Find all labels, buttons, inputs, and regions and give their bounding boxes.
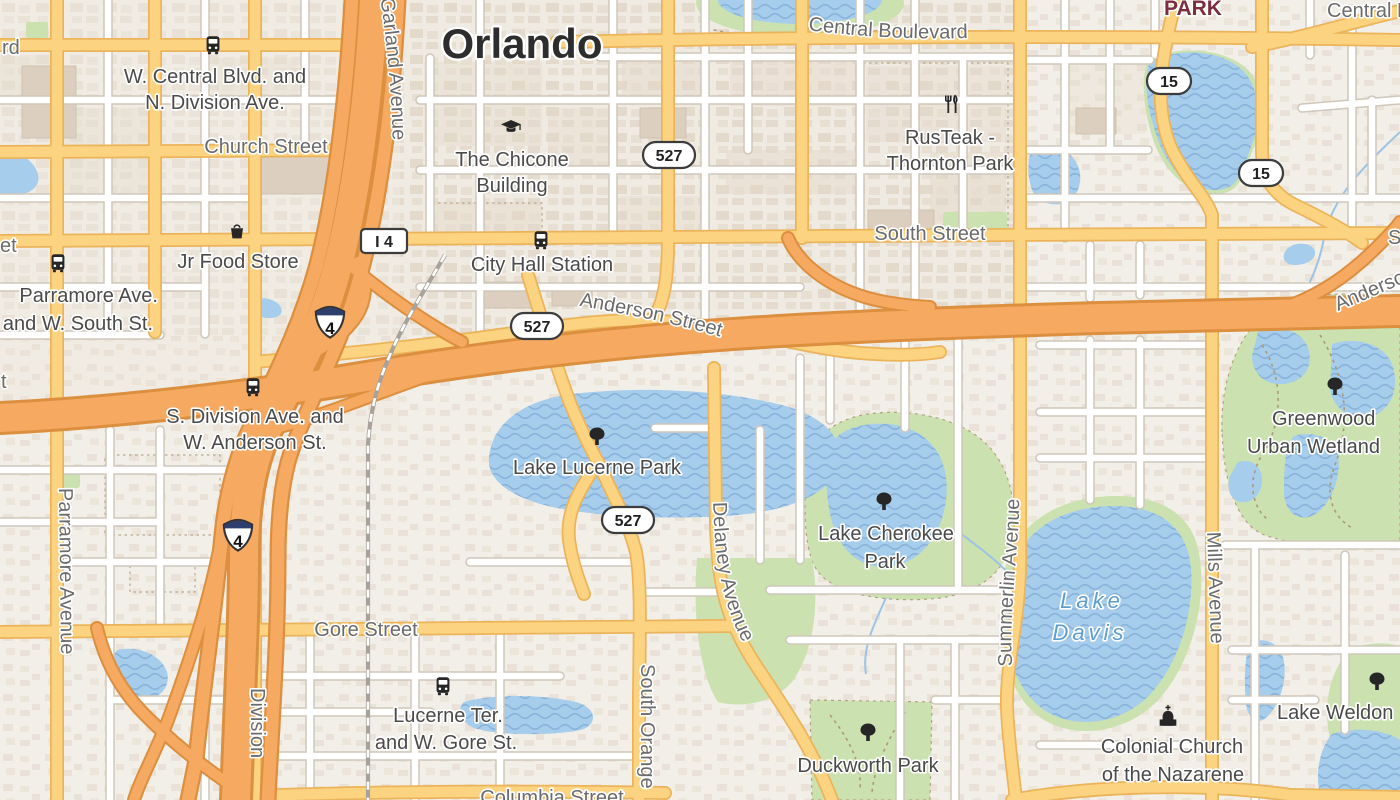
svg-text:I 4: I 4 bbox=[375, 234, 393, 251]
street-label-fragment-et: et bbox=[0, 235, 17, 257]
map-canvas[interactable]: 527 527 527 15 15 I 4 4 4 bbox=[0, 0, 1400, 800]
poi-label-greenwood: Greenwood bbox=[1272, 408, 1375, 430]
station-label-lucerne: and W. Gore St. bbox=[375, 732, 517, 754]
street-label-fragment-rd: rd bbox=[2, 37, 20, 59]
station-label-sdivision: W. Anderson St. bbox=[183, 432, 326, 454]
poi-label-duckworth: Duckworth Park bbox=[797, 755, 939, 777]
station-label-parramore: and W. South St. bbox=[3, 313, 153, 335]
route-shield-i4-box: I 4 bbox=[361, 229, 407, 253]
svg-text:15: 15 bbox=[1160, 74, 1178, 91]
route-shield-15: 15 bbox=[1147, 68, 1191, 94]
poi-label-jr-food: Jr Food Store bbox=[177, 251, 298, 273]
street-label-gore: Gore Street bbox=[314, 619, 418, 641]
svg-text:15: 15 bbox=[1252, 166, 1270, 183]
poi-label-colonial-church: of the Nazarene bbox=[1102, 764, 1244, 786]
park-name-fragment: PARK bbox=[1164, 0, 1222, 20]
map-svg: 527 527 527 15 15 I 4 4 4 bbox=[0, 0, 1400, 800]
street-label-south-right: South Street bbox=[1388, 227, 1400, 249]
bus-icon bbox=[535, 231, 548, 249]
station-label-city-hall: City Hall Station bbox=[471, 254, 613, 276]
poi-label-chicone: Building bbox=[476, 175, 547, 197]
street-label-central-fragment: Central Boulevard bbox=[1327, 0, 1400, 22]
station-label-lucerne: Lucerne Ter. bbox=[393, 705, 503, 727]
water-label-lake-davis: Lake bbox=[1060, 588, 1124, 613]
station-label-sdivision: S. Division Ave. and bbox=[166, 406, 344, 428]
bus-icon bbox=[207, 36, 220, 54]
poi-label-lake-cherokee: Lake Cherokee bbox=[818, 523, 954, 545]
poi-label-chicone: The Chicone bbox=[455, 149, 568, 171]
poi-label-lake-weldon: Lake Weldon bbox=[1277, 702, 1393, 724]
svg-text:4: 4 bbox=[325, 319, 335, 338]
svg-text:527: 527 bbox=[656, 148, 683, 165]
svg-text:527: 527 bbox=[615, 513, 642, 530]
poi-label-rusteak: RusTeak - bbox=[905, 127, 995, 149]
svg-text:527: 527 bbox=[524, 319, 551, 336]
station-label-wcentral: W. Central Blvd. and bbox=[124, 66, 306, 88]
route-shield-527: 527 bbox=[511, 313, 563, 339]
poi-label-greenwood: Urban Wetland bbox=[1247, 436, 1380, 458]
street-label-south: South Street bbox=[874, 223, 986, 245]
street-label-church: Church Street bbox=[204, 136, 328, 158]
station-label-parramore: Parramore Ave. bbox=[19, 285, 158, 307]
poi-label-lake-lucerne-park: Lake Lucerne Park bbox=[513, 457, 682, 479]
street-label-parramore-ave: Parramore Avenue bbox=[54, 488, 78, 655]
street-label-mills: Mills Avenue bbox=[1202, 531, 1228, 644]
poi-label-rusteak: Thornton Park bbox=[887, 153, 1015, 175]
route-shield-527: 527 bbox=[602, 507, 654, 533]
street-label-south-orange: South Orange bbox=[636, 664, 658, 789]
route-shield-527: 527 bbox=[643, 142, 695, 168]
route-shield-15: 15 bbox=[1239, 160, 1283, 186]
city-title: Orlando bbox=[441, 20, 602, 67]
station-label-wcentral: N. Division Ave. bbox=[145, 92, 285, 114]
bus-icon bbox=[52, 254, 65, 272]
poi-label-lake-cherokee: Park bbox=[864, 551, 906, 573]
svg-text:4: 4 bbox=[233, 532, 243, 551]
street-label-columbia: Columbia Street bbox=[480, 787, 624, 800]
bus-icon bbox=[437, 677, 450, 695]
street-label-fragment-t: t bbox=[1, 371, 7, 393]
poi-label-colonial-church: Colonial Church bbox=[1101, 736, 1243, 758]
street-label-division: Division bbox=[246, 688, 268, 758]
bus-icon bbox=[247, 378, 260, 396]
water-label-lake-davis: Davis bbox=[1052, 620, 1127, 645]
